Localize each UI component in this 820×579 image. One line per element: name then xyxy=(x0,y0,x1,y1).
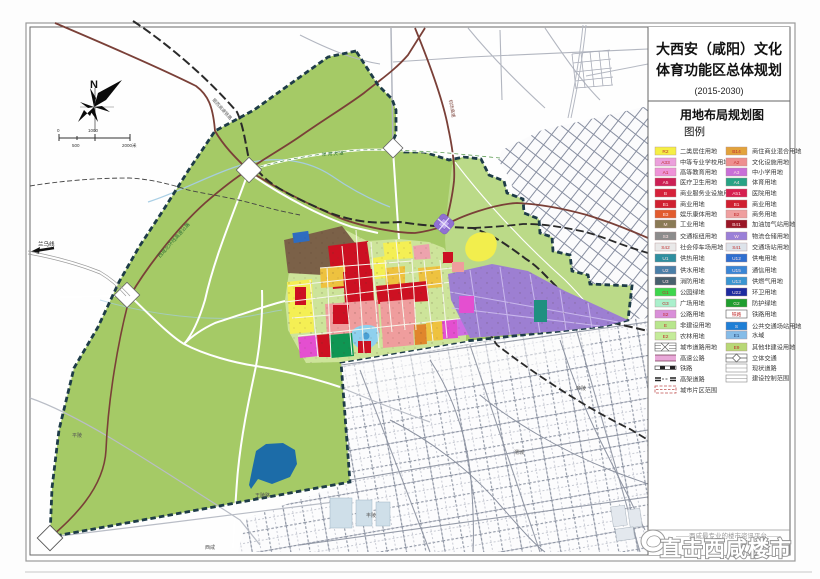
svg-text:体育功能区总体规划: 体育功能区总体规划 xyxy=(656,62,782,78)
svg-text:S41: S41 xyxy=(732,245,741,251)
svg-text:U15: U15 xyxy=(732,268,741,274)
svg-text:E1: E1 xyxy=(734,333,740,339)
svg-text:W: W xyxy=(734,234,739,240)
svg-text:500: 500 xyxy=(72,143,80,148)
svg-text:R2: R2 xyxy=(662,149,668,155)
svg-text:文化设施用地: 文化设施用地 xyxy=(752,158,789,166)
svg-text:E9: E9 xyxy=(734,345,740,351)
svg-text:供电用地: 供电用地 xyxy=(752,254,777,262)
svg-text:G1: G1 xyxy=(662,290,669,296)
svg-text:U22: U22 xyxy=(732,290,741,296)
svg-text:E2: E2 xyxy=(663,334,669,340)
svg-text:现状道路: 现状道路 xyxy=(752,364,778,372)
svg-text:立体交通: 立体交通 xyxy=(752,354,777,362)
svg-text:环卫用地: 环卫用地 xyxy=(752,288,777,296)
svg-text:城市道路用地: 城市道路用地 xyxy=(680,343,717,351)
svg-text:渭城: 渭城 xyxy=(514,449,524,456)
svg-text:高等教育用地: 高等教育用地 xyxy=(680,168,717,176)
svg-text:商业用地: 商业用地 xyxy=(752,200,777,208)
svg-text:医院用地: 医院用地 xyxy=(752,189,777,197)
svg-text:B3: B3 xyxy=(663,212,669,218)
svg-text:中等专业学校用地: 中等专业学校用地 xyxy=(680,158,730,166)
svg-text:直击西咸楼市: 直击西咸楼市 xyxy=(660,537,792,561)
svg-text:A4: A4 xyxy=(734,180,740,186)
svg-text:铁路: 铁路 xyxy=(680,364,693,372)
svg-text:广场用地: 广场用地 xyxy=(680,299,705,307)
svg-text:西咸: 西咸 xyxy=(205,544,215,551)
svg-text:公共交通场站用地: 公共交通场站用地 xyxy=(752,322,802,330)
svg-text:U1: U1 xyxy=(662,256,668,262)
svg-text:B41: B41 xyxy=(732,222,741,228)
svg-text:E: E xyxy=(664,323,667,329)
svg-text:1000: 1000 xyxy=(88,128,99,133)
svg-text:高架道路: 高架道路 xyxy=(680,375,706,383)
svg-text:交通场站用地: 交通场站用地 xyxy=(752,243,789,251)
svg-text:交通枢纽用地: 交通枢纽用地 xyxy=(680,232,717,240)
svg-text:A5: A5 xyxy=(663,180,669,186)
svg-text:中小学用地: 中小学用地 xyxy=(752,168,783,176)
svg-text:高速公路: 高速公路 xyxy=(680,354,706,362)
svg-text:兰乌线: 兰乌线 xyxy=(38,240,55,248)
svg-text:物流仓储用地: 物流仓储用地 xyxy=(752,232,789,240)
svg-text:非建设用地: 非建设用地 xyxy=(680,321,711,329)
svg-text:U3: U3 xyxy=(662,279,668,285)
svg-text:(2015-2030): (2015-2030) xyxy=(694,86,743,96)
svg-text:加油加气站用地: 加油加气站用地 xyxy=(752,220,795,228)
svg-text:防护绿地: 防护绿地 xyxy=(752,299,777,307)
svg-text:S: S xyxy=(735,324,738,330)
svg-text:丰陵: 丰陵 xyxy=(366,512,376,519)
svg-text:社会停车场用地: 社会停车场用地 xyxy=(680,243,723,251)
svg-text:用地布局规划图: 用地布局规划图 xyxy=(679,107,764,122)
svg-text:G2: G2 xyxy=(733,301,740,307)
svg-text:平陵: 平陵 xyxy=(72,432,82,439)
svg-text:大西安（咸阳）文化: 大西安（咸阳）文化 xyxy=(656,41,782,57)
svg-text:工业用地: 工业用地 xyxy=(680,220,705,228)
svg-text:公路用地: 公路用地 xyxy=(680,310,705,318)
svg-text:A3: A3 xyxy=(734,170,740,176)
svg-text:M: M xyxy=(664,222,668,228)
svg-text:2000米: 2000米 xyxy=(122,142,137,149)
svg-text:建设控制范围: 建设控制范围 xyxy=(752,374,789,382)
svg-text:王陵路: 王陵路 xyxy=(255,492,270,499)
svg-text:商务用地: 商务用地 xyxy=(752,210,777,218)
svg-text:水域: 水域 xyxy=(752,331,764,339)
svg-text:B1: B1 xyxy=(734,202,740,208)
svg-text:供水用地: 供水用地 xyxy=(680,266,705,274)
svg-text:A2: A2 xyxy=(734,160,740,166)
svg-text:S42: S42 xyxy=(661,245,670,251)
svg-text:铁路用地: 铁路用地 xyxy=(752,310,777,318)
svg-text:U13: U13 xyxy=(732,279,741,285)
svg-text:铁路: 铁路 xyxy=(732,311,742,318)
svg-text:B14: B14 xyxy=(732,149,741,155)
svg-text:供热用地: 供热用地 xyxy=(680,254,705,262)
svg-text:N: N xyxy=(90,79,98,91)
svg-text:B: B xyxy=(664,191,667,197)
svg-text:A51: A51 xyxy=(732,191,741,197)
svg-text:城市片区范围: 城市片区范围 xyxy=(680,386,717,394)
svg-text:消防用地: 消防用地 xyxy=(680,277,705,285)
svg-text:医疗卫生用地: 医疗卫生用地 xyxy=(680,178,717,186)
svg-text:B2: B2 xyxy=(734,212,740,218)
svg-text:S2: S2 xyxy=(663,312,669,318)
svg-text:A1: A1 xyxy=(663,170,669,176)
svg-text:B1: B1 xyxy=(663,202,669,208)
svg-text:G3: G3 xyxy=(662,301,669,307)
svg-text:帝陵: 帝陵 xyxy=(576,385,586,392)
svg-text:商住商业混合用地: 商住商业混合用地 xyxy=(752,147,802,155)
svg-text:图例: 图例 xyxy=(684,125,705,138)
svg-text:S3: S3 xyxy=(663,234,669,240)
svg-text:农林用地: 农林用地 xyxy=(680,332,705,340)
svg-text:U2: U2 xyxy=(662,268,668,274)
svg-text:A33: A33 xyxy=(661,160,670,166)
svg-text:通信用地: 通信用地 xyxy=(752,266,777,274)
svg-text:U12: U12 xyxy=(732,256,741,262)
svg-text:二类居住用地: 二类居住用地 xyxy=(680,147,717,155)
svg-text:供燃气用地: 供燃气用地 xyxy=(752,277,783,285)
svg-text:体育用地: 体育用地 xyxy=(752,178,777,186)
svg-text:娱乐康体用地: 娱乐康体用地 xyxy=(680,210,717,218)
svg-text:商业用地: 商业用地 xyxy=(680,200,705,208)
svg-text:公园绿地: 公园绿地 xyxy=(680,288,705,296)
svg-text:其他非建设用地: 其他非建设用地 xyxy=(752,343,795,351)
